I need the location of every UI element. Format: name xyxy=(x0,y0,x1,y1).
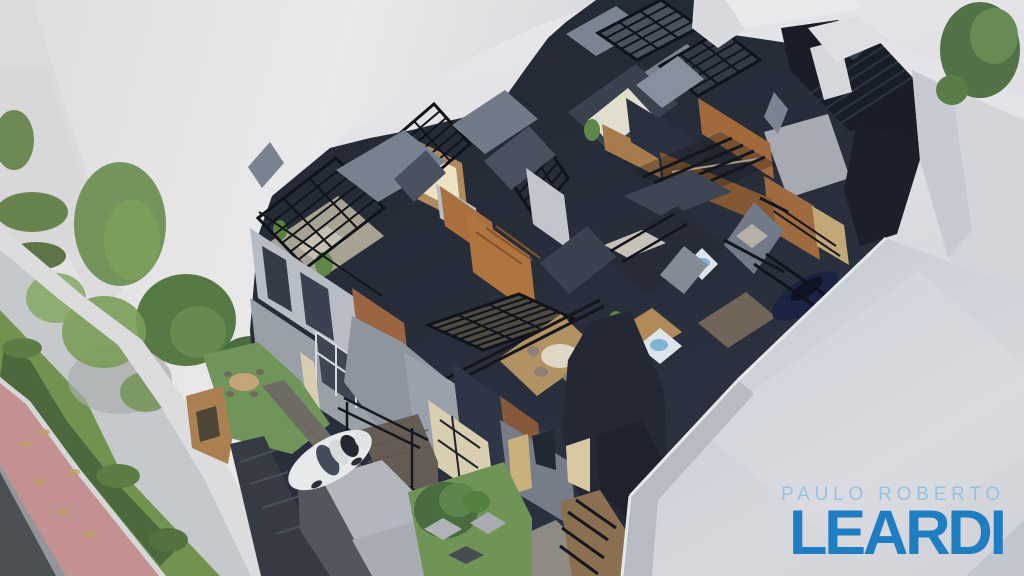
svg-text:LEARDI: LEARDI xyxy=(789,498,1007,568)
